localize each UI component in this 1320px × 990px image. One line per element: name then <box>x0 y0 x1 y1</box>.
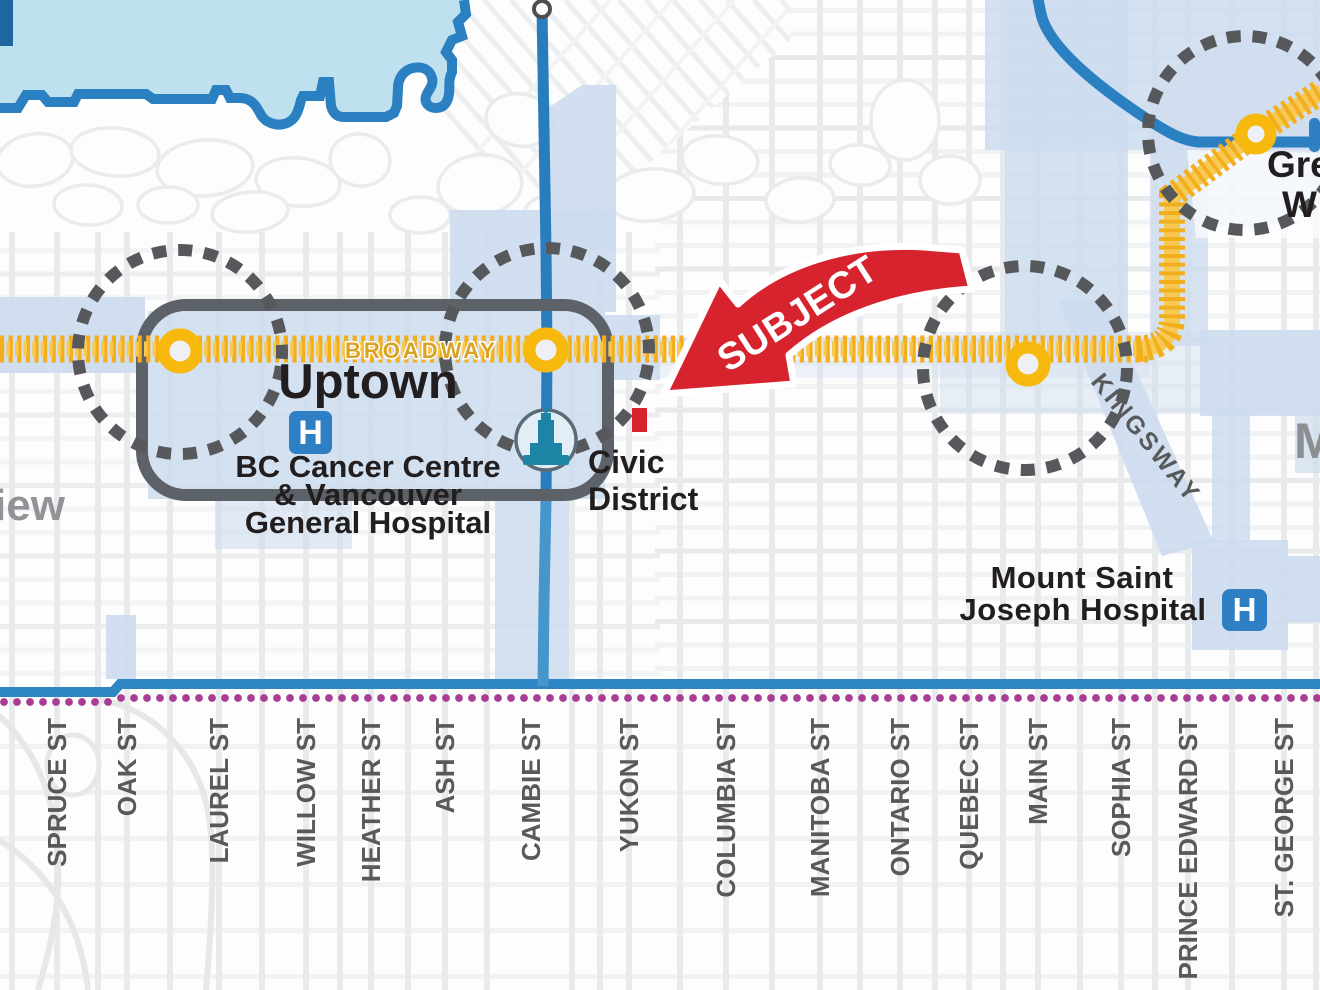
svg-text:Mount Saint: Mount Saint <box>991 560 1174 595</box>
svg-text:SOPHIA ST: SOPHIA ST <box>1106 718 1136 857</box>
svg-text:H: H <box>1233 591 1257 628</box>
svg-text:Civic: Civic <box>588 444 664 480</box>
svg-text:Joseph Hospital: Joseph Hospital <box>960 592 1207 627</box>
svg-text:H: H <box>298 414 323 452</box>
svg-text:CAMBIE ST: CAMBIE ST <box>516 718 546 861</box>
svg-text:ASH ST: ASH ST <box>430 718 460 813</box>
svg-text:Uptown: Uptown <box>278 355 458 409</box>
svg-text:YUKON ST: YUKON ST <box>614 718 644 852</box>
svg-text:QUEBEC ST: QUEBEC ST <box>954 718 984 870</box>
svg-text:HEATHER ST: HEATHER ST <box>356 718 386 882</box>
svg-text:PRINCE EDWARD ST: PRINCE EDWARD ST <box>1173 718 1203 980</box>
svg-text:MAIN ST: MAIN ST <box>1023 718 1053 825</box>
svg-text:MANITOBA ST: MANITOBA ST <box>805 718 835 897</box>
svg-text:WILLOW ST: WILLOW ST <box>291 718 321 867</box>
svg-text:COLUMBIA ST: COLUMBIA ST <box>711 718 741 898</box>
svg-text:iew: iew <box>0 481 66 530</box>
svg-text:W: W <box>1282 184 1317 225</box>
svg-text:ONTARIO ST: ONTARIO ST <box>885 718 915 877</box>
svg-text:ST. GEORGE ST: ST. GEORGE ST <box>1269 718 1299 917</box>
svg-text:General Hospital: General Hospital <box>245 505 491 540</box>
svg-text:Gre: Gre <box>1267 144 1320 185</box>
svg-text:M: M <box>1294 413 1320 469</box>
svg-text:District: District <box>588 481 699 517</box>
svg-text:SPRUCE ST: SPRUCE ST <box>42 718 72 867</box>
svg-text:OAK ST: OAK ST <box>112 718 142 816</box>
svg-text:LAUREL ST: LAUREL ST <box>204 718 234 864</box>
